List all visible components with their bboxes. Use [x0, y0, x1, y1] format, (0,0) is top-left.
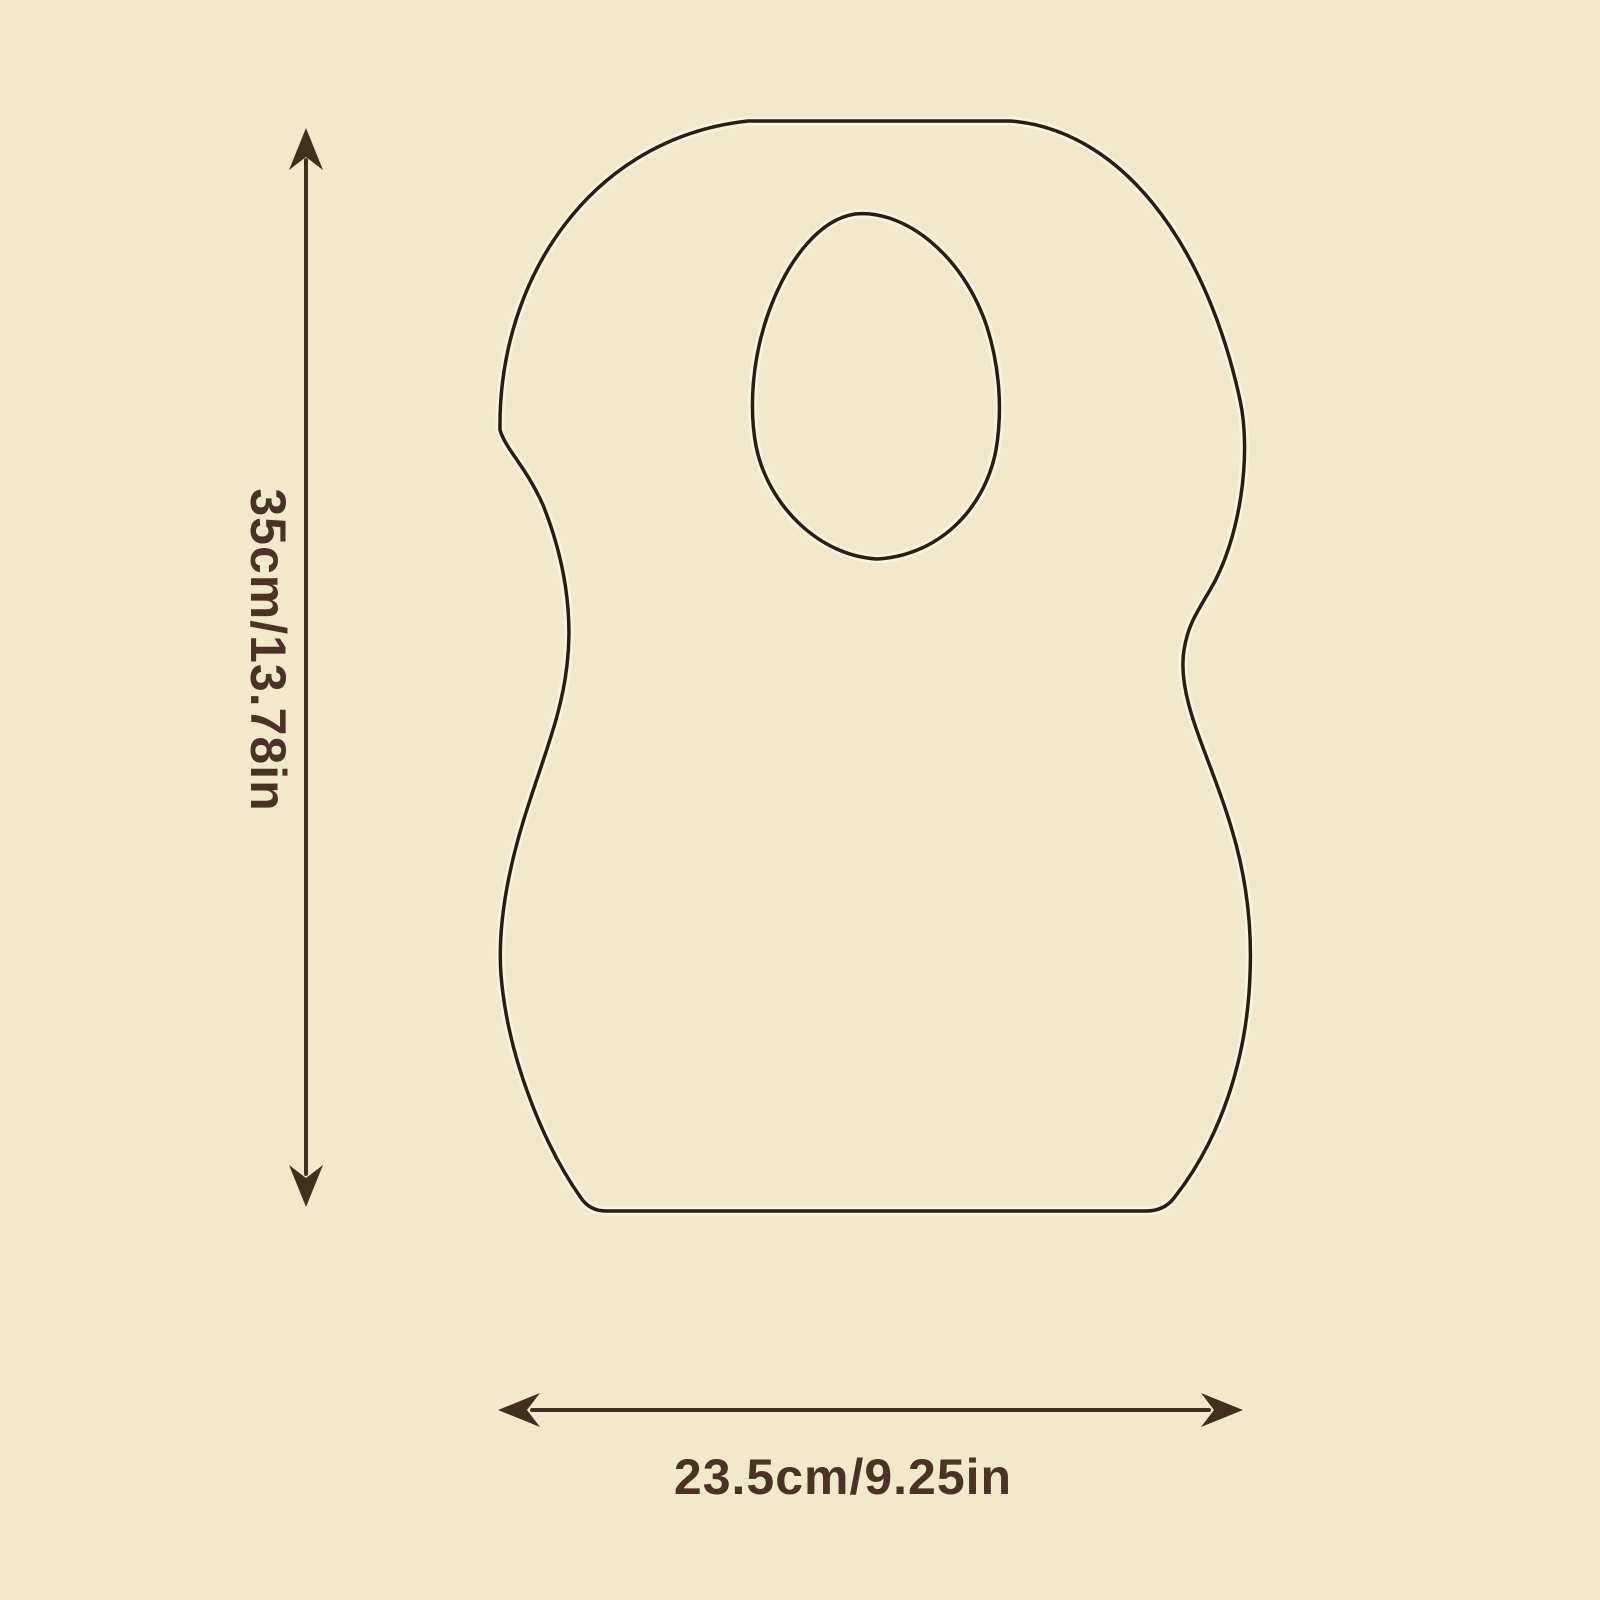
bib-outline — [500, 121, 1250, 1211]
height-dimension-label: 35cm/13.78in — [239, 488, 297, 811]
neck-hole-cutout — [752, 214, 999, 559]
bib-dimension-diagram: 35cm/13.78in 23.5cm/9.25in — [0, 0, 1600, 1600]
width-dimension-label: 23.5cm/9.25in — [674, 1448, 1012, 1506]
width-dimension-arrow — [498, 1393, 1243, 1427]
